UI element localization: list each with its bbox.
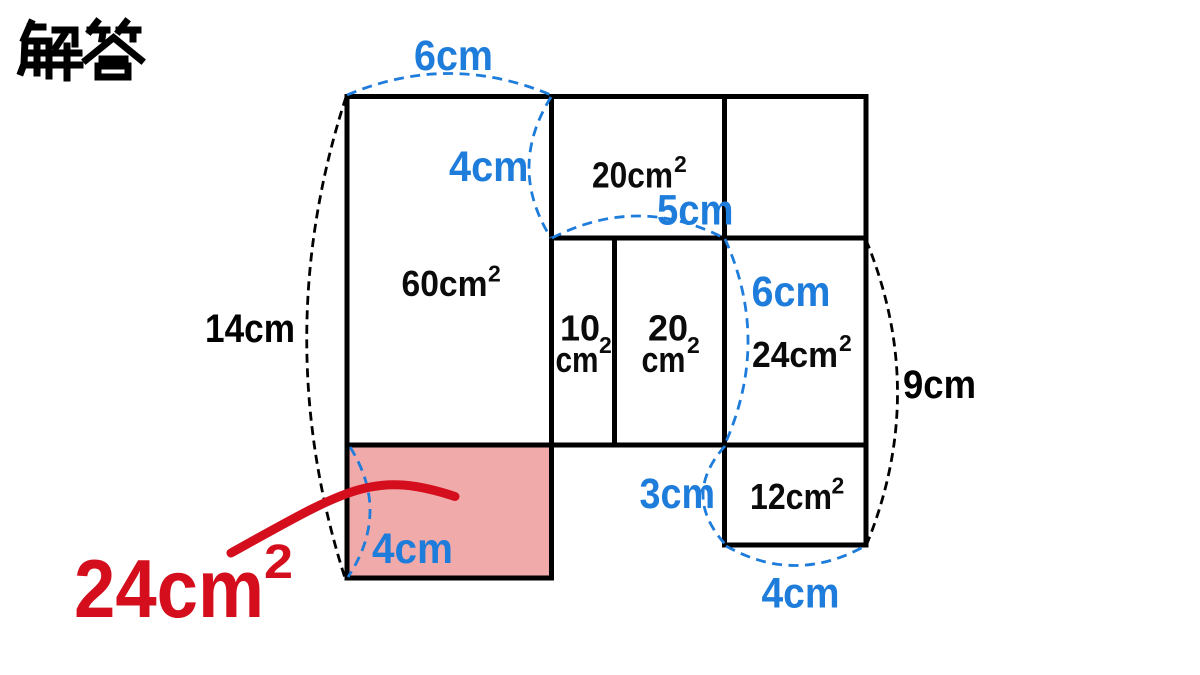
svg-text:4cm: 4cm — [762, 571, 840, 618]
svg-text:3cm: 3cm — [640, 471, 716, 518]
svg-text:14cm: 14cm — [205, 307, 295, 351]
svg-text:2: 2 — [832, 473, 845, 499]
svg-text:9cm: 9cm — [903, 363, 976, 407]
svg-text:2: 2 — [687, 332, 700, 358]
svg-text:cm: cm — [556, 339, 599, 380]
svg-text:4cm: 4cm — [372, 526, 453, 573]
svg-text:20cm: 20cm — [592, 155, 673, 196]
svg-text:2: 2 — [488, 261, 501, 287]
svg-text:cm: cm — [642, 339, 686, 380]
svg-text:2: 2 — [839, 330, 852, 356]
svg-text:24cm: 24cm — [74, 542, 264, 635]
svg-text:2: 2 — [674, 151, 687, 177]
svg-text:24cm: 24cm — [752, 334, 838, 375]
svg-text:6cm: 6cm — [752, 269, 831, 316]
svg-text:12cm: 12cm — [750, 476, 832, 517]
svg-text:2: 2 — [599, 332, 612, 358]
svg-text:6cm: 6cm — [414, 33, 493, 80]
svg-text:4cm: 4cm — [449, 144, 529, 191]
svg-text:2: 2 — [264, 536, 293, 589]
svg-text:60cm: 60cm — [402, 263, 488, 304]
